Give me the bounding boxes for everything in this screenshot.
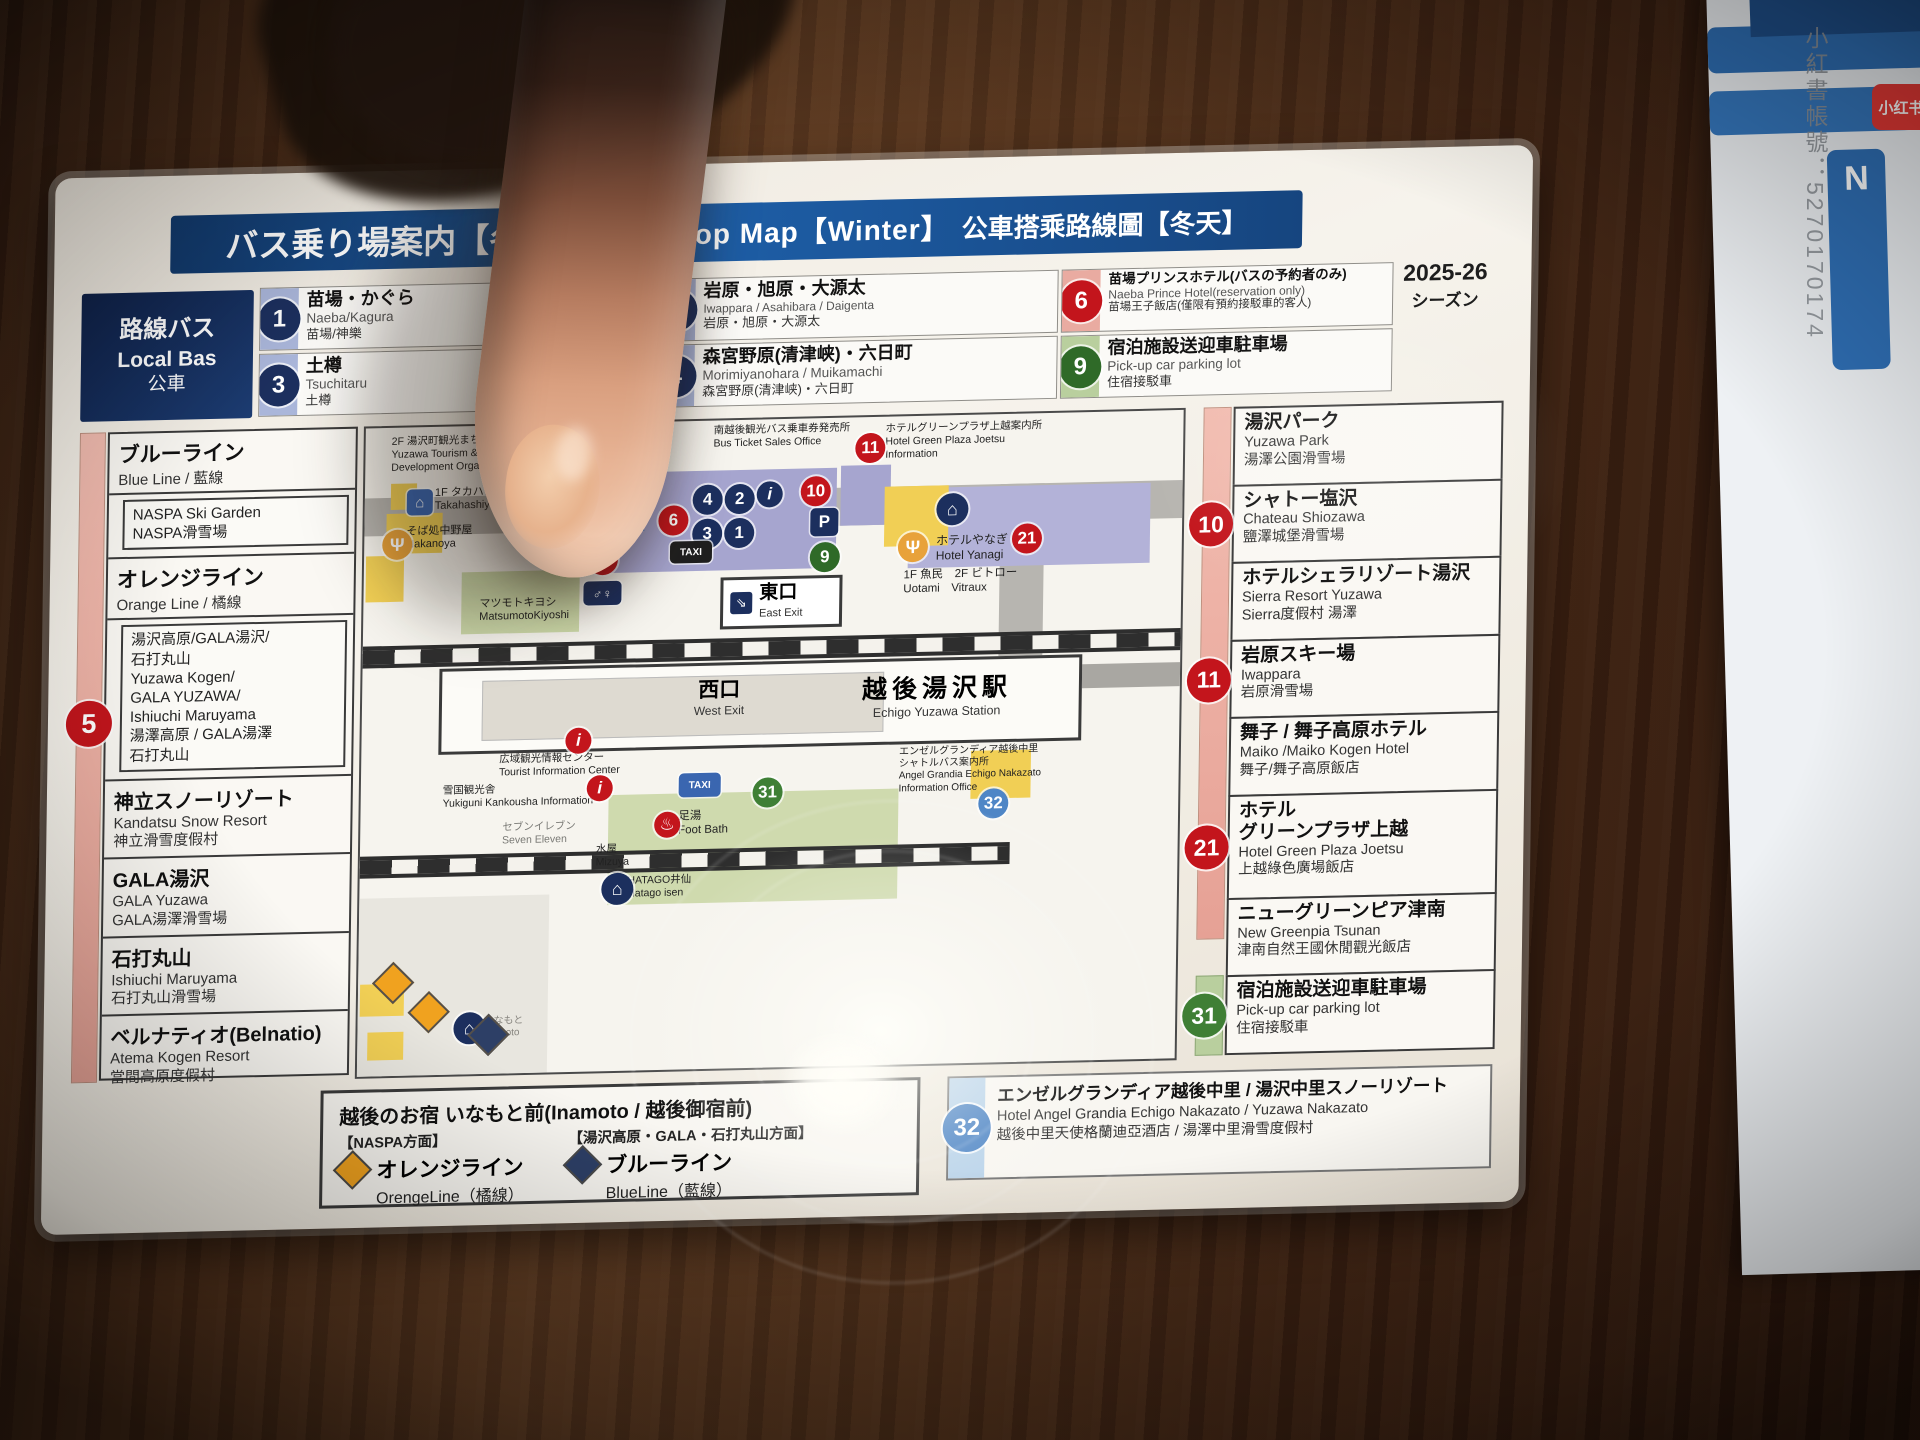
map-label: 1F 魚民 2F ビトロー Uotami Vitraux bbox=[903, 566, 1017, 597]
east-exit-box: ⇘ 東口 East Exit bbox=[720, 575, 843, 630]
legend-stop-band: 3 bbox=[259, 354, 298, 416]
resort-name-ja: ホテル グリーンプラザ上越 bbox=[1239, 795, 1488, 844]
station-platform bbox=[481, 672, 884, 741]
legend-stop-9: 9宿泊施設送迎車駐車場Pick-up car parking lot住宿接駁車 bbox=[1060, 328, 1393, 399]
right-entries: 湯沢パークYuzawa Park 湯澤公園滑雪場10シャトー塩沢Chateau … bbox=[1225, 401, 1504, 1055]
west-exit-label: 西口 West Exit bbox=[694, 673, 745, 718]
legend-stop-band: 6 bbox=[1062, 270, 1101, 332]
line-destinations-box: 湯沢高原/GALA湯沢/ 石打丸山 Yuzawa Kogen/ GALA YUZ… bbox=[119, 620, 347, 772]
xiaohongshu-badge: 小红书 bbox=[1872, 84, 1920, 130]
map-label: 水屋 Mizuya bbox=[596, 843, 630, 869]
legend-stop-6: 6苗場プリンスホテル(バスの予約者のみ)Naeba Prince Hotel(r… bbox=[1061, 262, 1394, 333]
map-label: ホテルやなぎ Hotel Yanagi bbox=[936, 532, 1008, 563]
resort-name-sub: Atema Kogen Resort 當間高原度假村 bbox=[110, 1045, 338, 1088]
route-line-header: ブルーラインBlue Line / 藍線 bbox=[109, 429, 356, 496]
resort-entry: 舞子 / 舞子高原ホテルMaiko /Maiko Kogen Hotel 舞子/… bbox=[1228, 711, 1499, 797]
map-label: エンゼルグランディア越後中里 シャトルバス案内所 Angel Grandia E… bbox=[898, 743, 1041, 795]
resort-entry: 湯沢パークYuzawa Park 湯澤公園滑雪場 bbox=[1233, 401, 1504, 487]
sidebar-left: 5 ブルーラインBlue Line / 藍線NASPA Ski Garden N… bbox=[71, 427, 358, 1082]
taxi-icon: TAXI bbox=[679, 773, 721, 798]
route-line-header: オレンジラインOrange Line / 橘線 bbox=[107, 552, 354, 621]
legend-stop-4: 4森宮野原(清津峡)・六日町Morimiyanohara / Muikamach… bbox=[655, 336, 1058, 408]
resort-entry: 31宿泊施設送迎車駐車場Pick-up car parking lot 住宿接駁… bbox=[1225, 969, 1496, 1055]
resort-name-sub: Iwappara 岩原滑雪場 bbox=[1241, 662, 1489, 703]
local-bus-box: 路線バス Local Bas 公車 bbox=[80, 290, 254, 422]
map-label: 南越後観光バス乗車券発売所 Bus Ticket Sales Office bbox=[713, 421, 850, 450]
resort-name-sub: Chateau Shiozawa 鹽澤城堡滑雪場 bbox=[1243, 506, 1491, 547]
resort-entry: GALA湯沢GALA Yuzawa GALA湯澤滑雪場 bbox=[103, 852, 350, 936]
legend-stop-text: 森宮野原(清津峡)・六日町Morimiyanohara / Muikamachi… bbox=[694, 337, 1057, 406]
station-building: 西口 West Exit 越後湯沢駅 Echigo Yuzawa Station bbox=[438, 654, 1082, 755]
resort-entry: 11岩原スキー場Iwappara 岩原滑雪場 bbox=[1229, 634, 1500, 720]
resort-name-sub: Ishiuchi Maruyama 石打丸山滑雪場 bbox=[111, 967, 339, 1010]
season-label: 2025-26 シーズン bbox=[1385, 258, 1506, 313]
stop-badge-1: 1 bbox=[259, 297, 301, 340]
map-label: 雪国観光舎 Yukiguni Kankousha Information bbox=[443, 781, 594, 810]
stop-badge-31: 31 bbox=[1182, 993, 1227, 1038]
map-label: ホテルグリーンプラザ上越案内所 Hotel Green Plaza Joetsu… bbox=[885, 419, 1042, 461]
watermark-account: 小紅書帳號：5270170174 bbox=[1798, 26, 1832, 340]
restroom-icon: ♂♀ bbox=[583, 581, 621, 606]
legend-stop-text: 苗場プリンスホテル(バスの予約者のみ)Naeba Prince Hotel(re… bbox=[1100, 263, 1393, 331]
map-label: 足湯 Foot Bath bbox=[678, 808, 728, 837]
photo-scene: N 小紅書帳號：5270170174 小红书 バス乗り場案内【冬期】 Bus S… bbox=[0, 0, 1920, 1440]
sidebar-right: 湯沢パークYuzawa Park 湯澤公園滑雪場10シャトー塩沢Chateau … bbox=[1195, 401, 1504, 1056]
resort-entry: ニューグリーンピア津南New Greenpia Tsunan 津南自然王國休閒觀… bbox=[1226, 892, 1497, 978]
resort-name-sub: Hotel Green Plaza Joetsu 上越綠色廣場飯店 bbox=[1238, 839, 1486, 880]
title-zh: 公車搭乘路線圖【冬天】 bbox=[961, 202, 1247, 246]
station-name: 越後湯沢駅 Echigo Yuzawa Station bbox=[862, 667, 1013, 720]
resort-name-sub: New Greenpia Tsunan 津南自然王國休閒觀光飯店 bbox=[1237, 920, 1485, 961]
escalator-icon: ⇘ bbox=[730, 592, 752, 615]
stop-badge-6: 6 bbox=[1061, 279, 1103, 322]
stop-badge-9: 9 bbox=[1060, 345, 1102, 388]
light-glare-core bbox=[756, 1008, 926, 1158]
left-sections: ブルーラインBlue Line / 藍線NASPA Ski Garden NAS… bbox=[99, 427, 358, 1081]
resort-entry: ホテルシェラリゾート湯沢Sierra Resort Yuzawa Sierra度… bbox=[1230, 556, 1501, 642]
resort-entry: 神立スノーリゾートKandatsu Snow Resort 神立滑雪度假村 bbox=[104, 774, 351, 858]
fingernail bbox=[498, 420, 606, 555]
legend-stop-2: 2岩原・旭原・大源太Iwappara / Asahibara / Daigent… bbox=[656, 270, 1059, 342]
legend-stop-text: 宿泊施設送迎車駐車場Pick-up car parking lot住宿接駁車 bbox=[1099, 329, 1392, 397]
orange-diamond-icon bbox=[333, 1150, 373, 1190]
resort-entry: 10シャトー塩沢Chateau Shiozawa 鹽澤城堡滑雪場 bbox=[1232, 478, 1503, 564]
orange-line-legend: 【NASPA方面】 オレンジライン OrengeLine（橘線） bbox=[338, 1128, 525, 1209]
taxi-icon: TAXI bbox=[670, 541, 712, 564]
map-stop-badge-P: P bbox=[810, 508, 838, 537]
legend-stop-text: 岩原・旭原・大源太Iwappara / Asahibara / Daigenta… bbox=[695, 271, 1058, 340]
resort-name-sub: Kandatsu Snow Resort 神立滑雪度假村 bbox=[113, 810, 341, 853]
side-card-letter: N bbox=[1827, 149, 1891, 371]
map-label: セブンイレブン Seven Eleven bbox=[502, 820, 576, 847]
legend-stop-band: 9 bbox=[1061, 336, 1100, 398]
legend-stop-band: 1 bbox=[260, 288, 299, 350]
blue-diamond-icon bbox=[562, 1145, 602, 1185]
resort-name-ja: ベルナティオ(Belnatio) bbox=[110, 1016, 338, 1050]
resort-entry: 石打丸山Ishiuchi Maruyama 石打丸山滑雪場 bbox=[102, 931, 349, 1015]
resort-name-sub: Maiko /Maiko Kogen Hotel 舞子/舞子高原飯店 bbox=[1239, 739, 1487, 780]
line-name-sub: Blue Line / 藍線 bbox=[118, 464, 346, 490]
resort-entry: 21ホテル グリーンプラザ上越Hotel Green Plaza Joetsu … bbox=[1227, 789, 1498, 900]
stop-badge-3: 3 bbox=[258, 363, 300, 406]
line-destinations-box: NASPA Ski Garden NASPA滑雪場 bbox=[122, 495, 349, 551]
line-name-sub: Orange Line / 橘線 bbox=[116, 589, 344, 615]
resort-name-sub: Sierra Resort Yuzawa Sierra度假村 湯澤 bbox=[1242, 584, 1490, 625]
building-yellow bbox=[367, 1032, 403, 1061]
resort-name-sub: GALA Yuzawa GALA湯澤滑雪場 bbox=[112, 888, 340, 931]
resort-entry: ベルナティオ(Belnatio)Atema Kogen Resort 當間高原度… bbox=[101, 1009, 348, 1093]
map-stop-badge-11: 11 bbox=[855, 433, 885, 464]
title-bar: バス乗り場案内【冬期】 Bus Stop Map【Winter】 公車搭乘路線圖… bbox=[170, 190, 1303, 274]
resort-name-sub: Yuzawa Park 湯澤公園滑雪場 bbox=[1244, 429, 1492, 470]
resort-name-sub: Pick-up car parking lot 住宿接駁車 bbox=[1236, 998, 1484, 1039]
background-card-edge bbox=[1749, 0, 1920, 37]
